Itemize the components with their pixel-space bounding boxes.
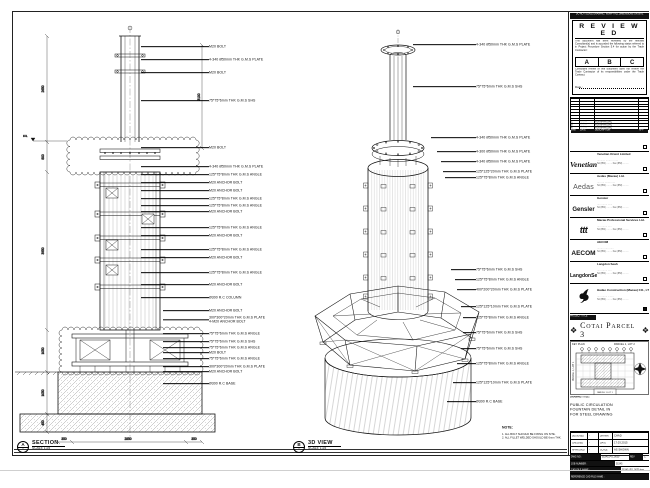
svg-text:1050: 1050 — [41, 347, 45, 354]
consultant-name: Macau Professional Services Ltd. — [597, 219, 649, 222]
revision-by: · — [639, 121, 648, 123]
consultant-list: Venetian Venetian Orient Limited ·······… — [570, 130, 649, 284]
revision-mark: B — [571, 124, 579, 126]
date-dotted-line — [579, 84, 644, 89]
field-row: CHECKED - DATE 17.03.2015 — [571, 439, 648, 446]
drawing-sheet-page: 2650 800 3950 1050 1050 450 3100 350 285 — [0, 0, 650, 488]
revision-mark: C — [571, 121, 579, 123]
signature-fields: DESIGNED - DRAWN CHAD CHECKED - DATE 17.… — [570, 431, 649, 454]
upper-shaft-rods — [390, 53, 406, 141]
stamp-date-line: Date : — [575, 83, 644, 89]
dimension-chain-bottom: 350 2850 350 — [56, 437, 204, 444]
consultant-row: Venetian Venetian Orient Limited ·······… — [570, 152, 649, 174]
status-option-c: C — [621, 58, 643, 66]
field-value: - — [589, 442, 598, 445]
contractor-address: ····· ········ ·· ····· Tel (853) ······… — [597, 296, 649, 301]
consultant-checkbox — [643, 189, 647, 193]
section-view-drawing: 2650 800 3950 1050 1050 450 3100 350 285 — [15, 22, 295, 452]
drawing-title-block: DRAWING TITLE: PUBLIC CIRCULATION FOUNTA… — [570, 396, 649, 455]
drawing-title-label: DRAWING TITLE: — [570, 396, 649, 398]
consultant-name: Gensler — [597, 197, 649, 200]
field-row: DESIGNED - DRAWN CHAD — [571, 432, 648, 439]
consultant-row: ttt Macau Professional Services Ltd. ···… — [570, 218, 649, 240]
reviewed-title: R E V I E W E D — [575, 23, 644, 39]
field-label: APPROVED — [572, 449, 587, 452]
project-title-box: ❖ Cotai Parcel 3 ❖ — [570, 320, 649, 341]
frame-line — [14, 449, 567, 450]
svg-text:1050: 1050 — [41, 389, 45, 396]
truss-braces — [315, 316, 471, 371]
dwg-no-value: 51545_PG_0030 — [602, 456, 612, 458]
revision-by: · — [639, 124, 648, 126]
consultant-checkbox — [643, 233, 647, 237]
consultant-row: Gensler Gensler ····· ········ ······ Te… — [570, 196, 649, 218]
consultant-row: LangdonSeah Langdon Seah ····· ········ … — [570, 262, 649, 284]
foundation-concrete — [15, 372, 215, 432]
field-value: CHAD — [614, 435, 648, 438]
do-not-scale-text: DO NOT SCALE DRAWING. VERIFY ALL DIMENSI… — [570, 13, 649, 15]
view-scale: SCALE 1:25 — [308, 447, 341, 450]
view-bubble-letter: A — [18, 442, 28, 447]
view-title: 3D VIEW — [308, 440, 341, 447]
mid-flange-assembly — [372, 141, 424, 168]
page-edge-line — [0, 470, 650, 471]
consultant-checkbox — [643, 277, 647, 281]
consultant-checkbox — [643, 145, 647, 149]
do-not-scale-bar: DO NOT SCALE DRAWING. VERIFY ALL DIMENSI… — [570, 13, 649, 19]
view-title: SECTION — [32, 440, 65, 447]
field-label: DATE — [600, 442, 612, 445]
dwg-no-label: DWG NO : — [571, 456, 582, 458]
field-value: AS SHOWN — [614, 449, 648, 452]
field-label: DRAWN — [600, 435, 612, 438]
drawing-sheet: 2650 800 3950 1050 1050 450 3100 350 285 — [12, 11, 649, 456]
revision-date: ··.··.···· — [580, 121, 594, 123]
stamp-paragraph-2: Consultant review of this document does … — [575, 68, 644, 77]
job-number-label: JOB NUMBER : — [571, 462, 587, 464]
concrete-drum-base — [325, 339, 471, 435]
svg-text:350: 350 — [191, 437, 197, 441]
key-plan-parcel-bottom: PARCEL 1 LOT 1 — [597, 391, 613, 394]
project-title-label: PROJECT TITLE — [570, 315, 596, 317]
svg-text:3950: 3950 — [41, 247, 45, 254]
consultant-logo: AECOM — [570, 242, 597, 260]
field-label: SCALE — [600, 449, 612, 452]
consultant-row: Aedas Aedas (Macau) Ltd. ····· ···· ····… — [570, 174, 649, 196]
consultant-logo: ttt — [570, 220, 597, 238]
stamp-status-options: A B C — [575, 57, 644, 67]
consultant-logo: LangdonSeah — [570, 264, 597, 282]
title-block: DO NOT SCALE DRAWING. VERIFY ALL DIMENSI… — [568, 12, 649, 455]
level-marker: FFL — [23, 134, 67, 141]
consultant-address: ········ ········ ····· Tel (853) ······… — [597, 248, 649, 253]
dimension-mid: 3100 — [197, 43, 204, 150]
consultant-row: AECOM AECOM ········ ········ ····· Tel … — [570, 240, 649, 262]
consultant-logo: Venetian — [570, 154, 597, 172]
date-label: Date : — [575, 86, 583, 89]
consultant-address: ····· ········ ····· Tel (853) ········ … — [597, 226, 649, 231]
3d-view-title: B - 3D VIEW SCALE 1:25 — [293, 440, 341, 453]
consultant-name: AECOM — [597, 241, 649, 244]
drawing-title: PUBLIC CIRCULATION FOUNTAIN DETAIL IN FO… — [570, 403, 649, 417]
3d-view-drawing — [295, 28, 565, 452]
field-value: - — [589, 435, 598, 438]
consultant-address: ····· ···· ········ ····· Tel (853) ····… — [597, 182, 649, 187]
key-plan-parcel-right: PARCEL 1, LOT 2 — [614, 342, 635, 346]
rev-label: REV — [630, 456, 635, 458]
consultant-address: ····· ········ ······ Tel (853) ········… — [597, 204, 649, 209]
revision-row: C ··.··.···· FOR APPROVAL · — [571, 120, 648, 123]
stamp-paragraph-1: This document has been reviewed by the r… — [575, 40, 644, 52]
consultant-logo: Gensler — [570, 198, 597, 216]
contractor-logo-icon — [570, 288, 597, 309]
consultant-checkbox — [643, 255, 647, 259]
reference-cad-label: REFERENCE CAD FILE NAME : — [571, 476, 604, 478]
job-number-value: 51545 — [616, 462, 629, 464]
revision-description: FOR APPROVAL — [595, 121, 638, 123]
reviewed-stamp: R E V I E W E D This document has been r… — [572, 20, 647, 95]
contractor-row: Hadao Construction (Macau) CO., LTD. ···… — [570, 284, 649, 314]
field-label: DESIGNED — [572, 435, 587, 438]
field-row: APPROVED - SCALE AS SHOWN — [571, 446, 648, 453]
consultant-checkbox — [643, 167, 647, 171]
consultant-name: Langdon Seah — [597, 263, 649, 266]
project-title: Cotai Parcel 3 — [580, 321, 639, 339]
reference-cad-row: REFERENCE CAD FILE NAME : — [570, 474, 649, 481]
svg-text:800: 800 — [41, 154, 45, 160]
status-option-b: B — [599, 58, 622, 66]
svg-text:450: 450 — [41, 420, 45, 426]
ornament-icon: ❖ — [642, 326, 649, 335]
key-plan-parcel-left: PARCEL 1, LOT 1 — [572, 361, 575, 381]
revision-date: ··.··.···· — [580, 124, 594, 126]
svg-text:2850: 2850 — [124, 437, 131, 441]
field-label: CHECKED — [572, 442, 587, 445]
svg-text:FFL: FFL — [23, 134, 28, 138]
field-value: 17.03.2015 — [614, 442, 648, 445]
consultant-logo: Aedas — [570, 176, 597, 194]
consultant-checkbox — [643, 211, 647, 215]
view-bubble-sub: - — [18, 446, 28, 451]
revision-table: C ··.··.···· FOR APPROVAL · B ··.··.····… — [570, 97, 649, 130]
svg-text:2650: 2650 — [41, 85, 45, 92]
top-flange — [381, 45, 415, 55]
consultant-row-empty — [570, 130, 649, 152]
rev-value: C — [644, 456, 646, 458]
revision-description: FOR APPROVAL — [595, 124, 638, 126]
key-plan-label: KEY PLAN — [572, 342, 585, 346]
view-bubble: B - — [293, 441, 305, 453]
view-bubble: A - — [17, 441, 29, 453]
contractor-name: Hadao Construction (Macau) CO., LTD. — [597, 289, 649, 292]
view-scale: SCALE 1:25 — [32, 447, 65, 450]
field-value: - — [589, 449, 598, 452]
centerline-top — [396, 29, 400, 43]
revision-row: B ··.··.···· FOR APPROVAL · — [571, 123, 648, 126]
frame-line — [14, 452, 567, 453]
ornament-icon: ❖ — [570, 326, 577, 335]
status-option-a: A — [576, 58, 599, 66]
section-view-title: A - SECTION SCALE 1:25 — [17, 440, 65, 453]
svg-text:3100: 3100 — [197, 93, 201, 100]
consultant-name: Aedas (Macau) Ltd. — [597, 175, 649, 178]
consultant-name: Venetian Orient Limited — [597, 153, 649, 156]
consultant-address: ··········· ········ ·· ····· Tel (853) … — [597, 160, 649, 165]
view-bubble-letter: B — [294, 442, 304, 447]
key-plan: KEY PLAN PARCEL 1, LOT 2 PARCEL 1, LOT 1 — [570, 341, 649, 395]
contractor-stamp-square — [643, 307, 647, 311]
consultant-address: ····· ········ ····· Tel (853) ········ … — [597, 270, 649, 275]
view-bubble-sub: - — [294, 446, 304, 451]
